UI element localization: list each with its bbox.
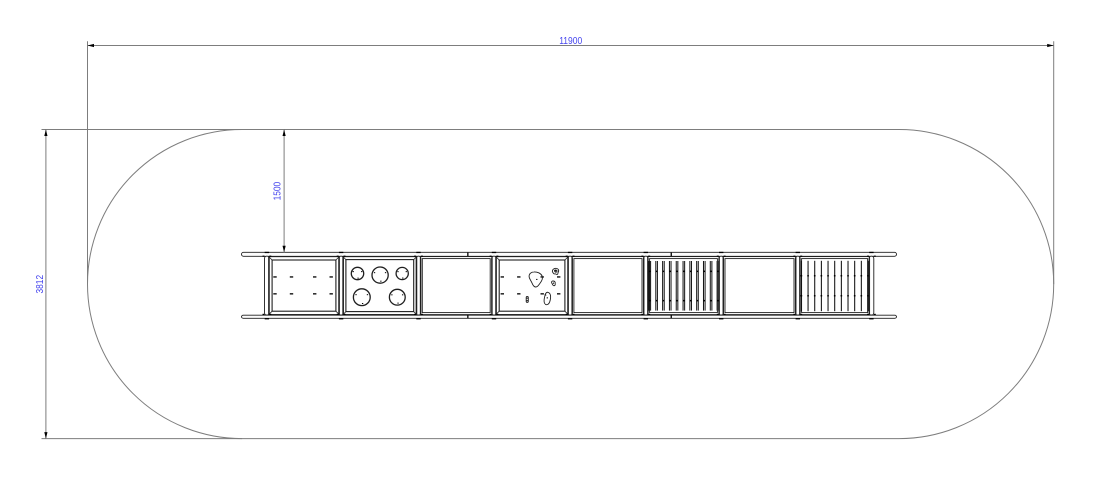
svg-text:11900: 11900 bbox=[559, 36, 582, 47]
svg-text:1500: 1500 bbox=[273, 182, 284, 201]
svg-text:3812: 3812 bbox=[35, 275, 46, 294]
